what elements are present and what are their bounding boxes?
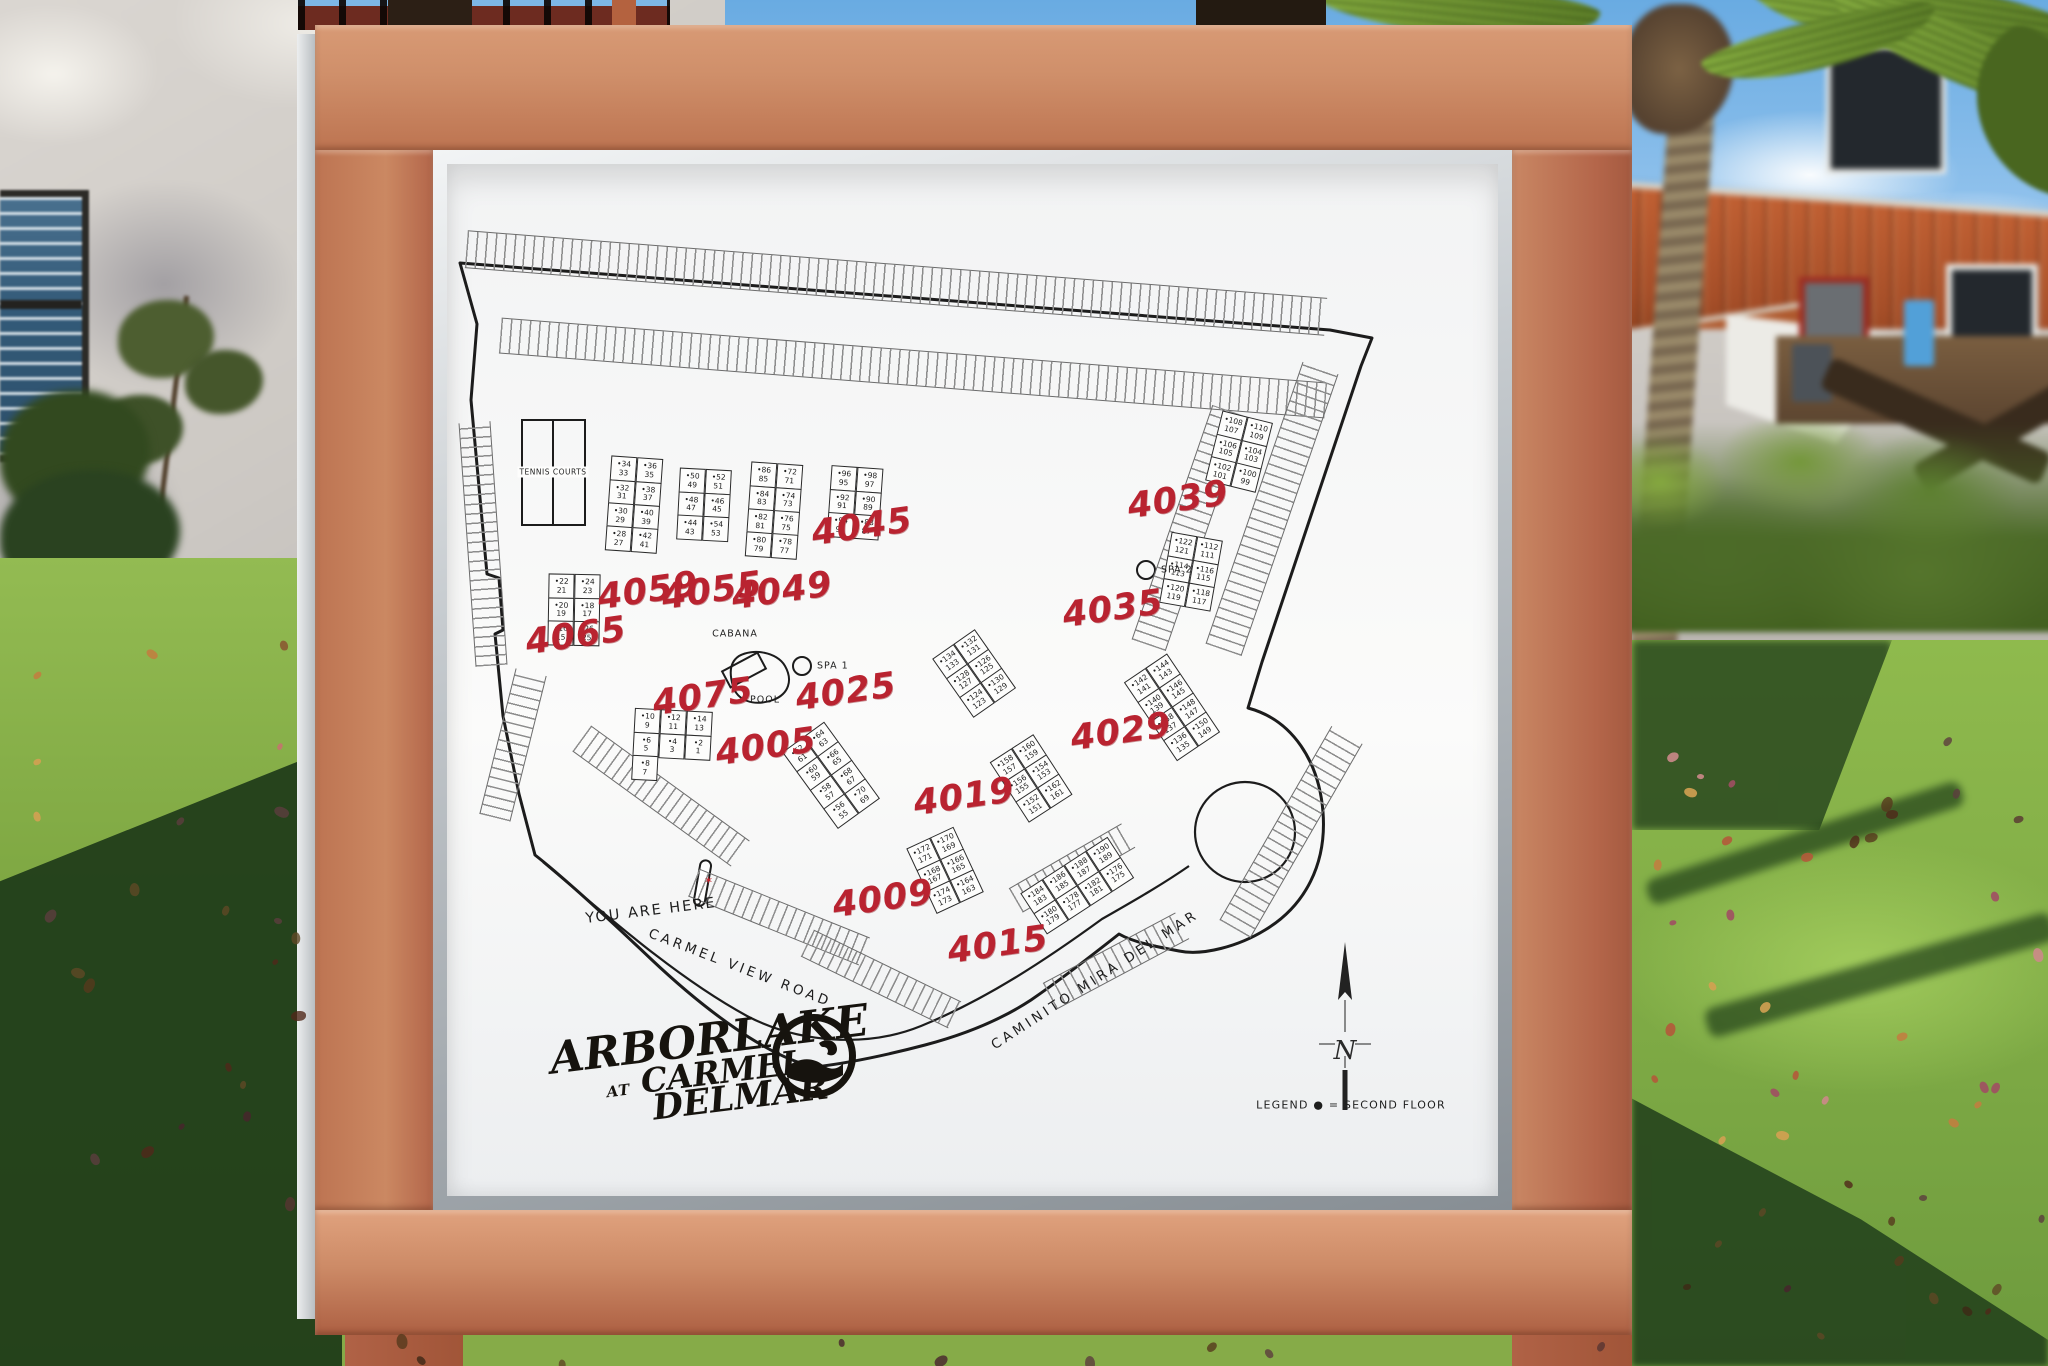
unit-box: •2827 [605, 526, 633, 553]
building-cluster-4049: •8685•7271•8483•7473•8281•7675•8079•7877 [746, 462, 804, 559]
you-are-here-star-icon: ✶ [704, 874, 713, 887]
unit-box: •21 [685, 734, 712, 760]
window-mullion [0, 300, 82, 309]
unit-box: •4645 [704, 492, 731, 518]
unit-box: •4443 [676, 514, 703, 540]
fallen-leaf [1205, 1341, 1219, 1354]
unit-box: •5049 [679, 468, 706, 494]
fallen-leaf [1084, 1356, 1095, 1366]
building-cluster-4059: •3433•3635•3231•3837•3029•4039•2827•4241 [606, 456, 664, 553]
site-map: •2221•2423•2019•1817•1615•2625•3433•3635… [447, 164, 1498, 1196]
unit-box: •4847 [678, 491, 705, 517]
unit-box: •65 [633, 731, 660, 757]
fallen-leaf [933, 1353, 950, 1366]
unit-box: •43 [659, 733, 686, 759]
fallen-leaf [397, 1334, 408, 1349]
fallen-leaf [1683, 1284, 1691, 1290]
sign-leg-right [1512, 1335, 1632, 1366]
spa2-label: SPA 2 [1161, 565, 1193, 576]
photo-community-map-sign: •2221•2423•2019•1817•1615•2625•3433•3635… [0, 0, 2048, 1366]
unit-box: •87 [631, 755, 658, 781]
sign-frame-left [315, 150, 433, 1210]
compass: N [1315, 940, 1375, 1110]
fallen-leaf [839, 1339, 845, 1347]
unit-box: •8079 [745, 532, 773, 559]
sign-frame-bottom [315, 1210, 1632, 1335]
arborlake-logo-mark-icon [772, 1014, 856, 1098]
pool-label: POOL [750, 695, 780, 706]
unit-box: •2221 [548, 574, 574, 599]
fallen-leaf [558, 1359, 566, 1366]
frame-edge-silver [297, 34, 317, 1319]
unit-box: •5251 [705, 469, 732, 495]
unit-box: •5453 [702, 516, 729, 542]
compass-north-label: N [1334, 1036, 1357, 1066]
spa1-label: SPA 1 [817, 661, 849, 672]
tennis-courts-label: TENNIS COURTS [517, 467, 588, 478]
unit-box: •118117 [1185, 583, 1215, 612]
building-cluster-4055: •5049•5251•4847•4645•4443•5453 [677, 469, 733, 542]
unit-box: •7877 [771, 533, 799, 560]
fallen-leaf [1263, 1347, 1274, 1359]
sign-frame-top [315, 25, 1632, 150]
blue-towel [1904, 300, 1934, 366]
unit-box: •4241 [631, 527, 659, 554]
ornamental-grasses [1632, 422, 2048, 632]
spa1-circle [793, 657, 811, 675]
cabana-label: CABANA [712, 629, 758, 640]
fallen-leaf [291, 1011, 306, 1022]
sign-frame-right [1512, 150, 1632, 1210]
